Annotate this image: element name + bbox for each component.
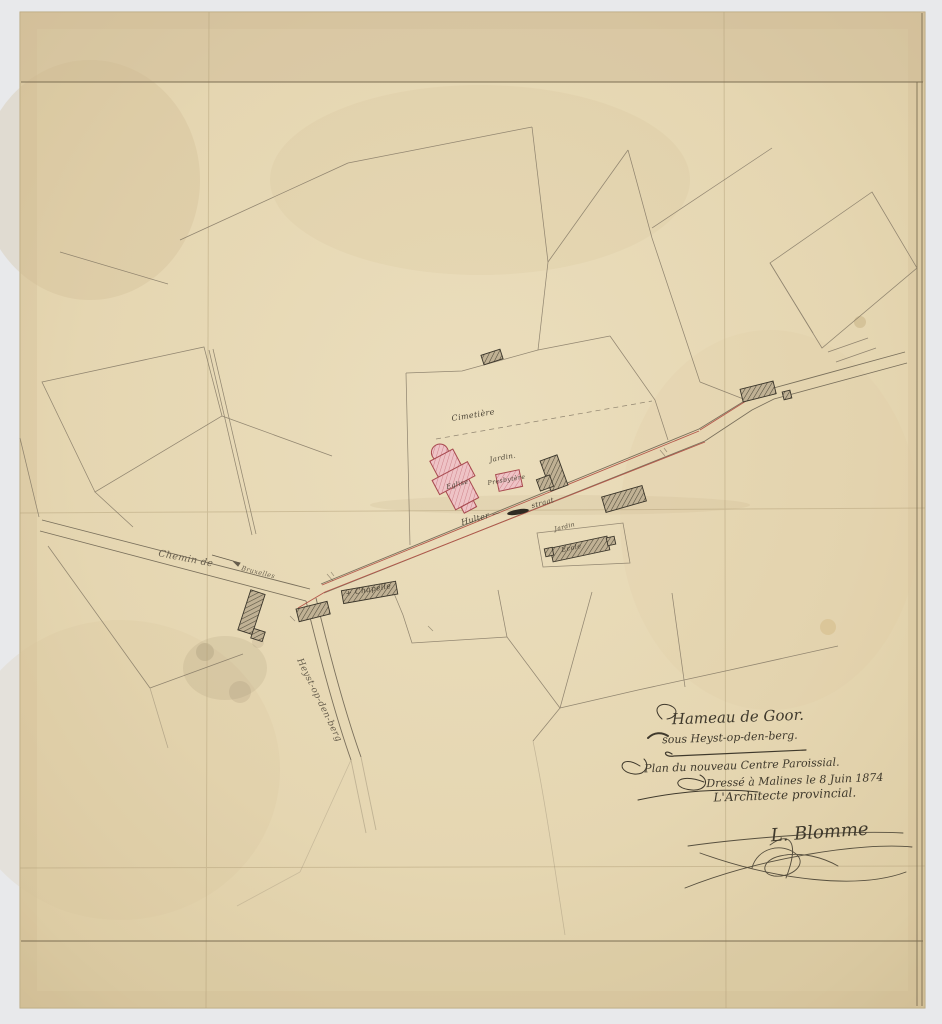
map-canvas: Cimetière Jardin. Eglise Presbytère Hult… xyxy=(0,0,942,1024)
scanned-map-page: Cimetière Jardin. Eglise Presbytère Hult… xyxy=(0,0,942,1024)
